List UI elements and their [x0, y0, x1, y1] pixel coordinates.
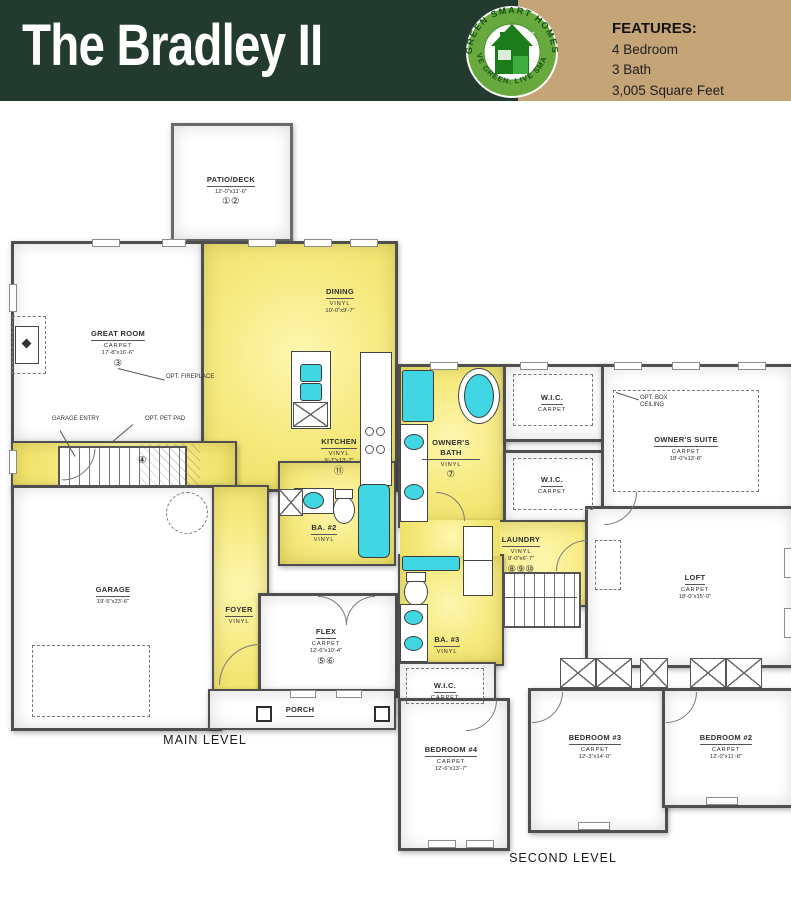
room-label-great-room: GREAT ROOM CARPET 17'-8"x16'-6" ③	[68, 322, 168, 370]
floorplan-sheet: The Bradley II	[0, 0, 791, 907]
toilet-icon	[404, 578, 428, 606]
soaking-tub-basin-icon	[464, 374, 494, 418]
room-label-kitchen: KITCHEN VINYL 9'-7"x13'-7" ⑪	[306, 430, 372, 478]
window	[784, 608, 791, 638]
stairs-badge: ④	[138, 455, 147, 466]
linen-closet-icon	[640, 658, 668, 688]
bedroom3-closet-icon	[560, 658, 596, 688]
features-list: FEATURES: 4 Bedroom 3 Bath 3,005 Square …	[612, 20, 724, 101]
room-label-wic-1: W.I.C. CARPET	[521, 386, 583, 414]
window	[336, 690, 362, 698]
toilet-tank-icon	[406, 572, 426, 582]
sink-icon	[404, 434, 424, 450]
header-bar: The Bradley II	[0, 0, 791, 101]
window	[9, 450, 17, 474]
porch-column	[374, 706, 390, 722]
window	[578, 822, 610, 830]
window	[248, 239, 276, 247]
window	[9, 284, 17, 312]
window	[672, 362, 700, 370]
garage-option-outline	[32, 645, 150, 717]
bedroom3-closet-icon	[596, 658, 632, 688]
dryer-icon	[463, 560, 493, 596]
window	[614, 362, 642, 370]
annotation-box-ceiling: OPT. BOX CEILING	[640, 395, 686, 409]
porch-column	[256, 706, 272, 722]
room-label-bedroom-2: BEDROOM #2 CARPET 12'-0"x11'-8"	[676, 726, 776, 762]
kitchen-sink-icon	[300, 364, 322, 382]
understair-closet-icon	[279, 489, 303, 516]
window	[466, 840, 494, 848]
room-label-patio-deck: PATIO/DECK 12'-0"x11'-6" ①②	[171, 168, 291, 209]
room-label-wic-3: W.I.C. CARPET	[414, 674, 476, 702]
window	[430, 362, 458, 370]
kitchen-sink-icon	[300, 383, 322, 401]
room-label-garage: GARAGE 19'-5"x23'-6"	[58, 578, 168, 606]
room-label-owners-bath: OWNER'S BATH VINYL ⑦	[422, 438, 480, 481]
toilet-tank-icon	[335, 489, 353, 499]
room-label-foyer: FOYER VINYL	[211, 598, 267, 626]
annotation-garage-entry: GARAGE ENTRY	[52, 416, 104, 423]
attic-access-outline	[595, 540, 621, 590]
feature-baths: 3 Bath	[612, 60, 724, 80]
island-cabinet-icon	[293, 402, 328, 427]
room-label-loft: LOFT CARPET 18'-0"x15'-0"	[658, 566, 732, 602]
room-label-bedroom-3: BEDROOM #3 CARPET 12'-3"x14'-0"	[548, 726, 642, 762]
window	[706, 797, 738, 805]
features-heading: FEATURES:	[612, 20, 724, 37]
staircase-second-level	[503, 572, 581, 628]
room-label-porch: PORCH	[268, 698, 332, 719]
sink-icon	[303, 492, 324, 509]
room-label-bedroom-4: BEDROOM #4 CARPET 12'-6"x13'-7"	[406, 738, 496, 774]
room-label-bath-2: BA. #2 VINYL	[296, 516, 352, 544]
feature-bedrooms: 4 Bedroom	[612, 40, 724, 60]
room-bedroom-4	[398, 698, 510, 851]
bathtub-icon	[358, 484, 390, 558]
annotation-pet-pad: OPT. PET PAD	[145, 416, 195, 423]
bath3-tub-icon	[402, 556, 460, 571]
room-label-dining: DINING VINYL 10'-0"x9'-7"	[300, 280, 380, 316]
room-label-laundry: LAUNDRY VINYL 9'-0"x6'-7" ⑧⑨⑩	[490, 528, 552, 576]
second-level-caption: SECOND LEVEL	[488, 851, 638, 865]
feature-sqft: 3,005 Square Feet	[612, 81, 724, 101]
pet-pad-hatch	[140, 444, 200, 485]
main-level-caption: MAIN LEVEL	[130, 733, 280, 747]
plan-title: The Bradley II	[22, 12, 322, 79]
window	[290, 690, 316, 698]
stair-rail	[503, 597, 577, 598]
garage-dashed-circle	[166, 492, 208, 534]
sink-icon	[404, 610, 423, 625]
window	[428, 840, 456, 848]
annotation-opt-fireplace: OPT. FIREPLACE	[166, 374, 226, 381]
bedroom2-closet-icon	[690, 658, 726, 688]
window	[92, 239, 120, 247]
shower-icon	[402, 370, 434, 422]
window	[520, 362, 548, 370]
green-smart-homes-logo-icon: GREEN SMART HOMES LIVE GREEN. LIVE SMART	[460, 4, 564, 100]
washer-icon	[463, 526, 493, 562]
window	[350, 239, 378, 247]
room-label-wic-2: W.I.C. CARPET	[521, 468, 583, 496]
room-label-flex: FLEX CARPET 12'-6"x10'-4" ⑤⑥	[288, 620, 364, 668]
room-label-owners-suite: OWNER'S SUITE CARPET 18'-0"x13'-8"	[626, 428, 746, 464]
window	[784, 548, 791, 578]
window	[738, 362, 766, 370]
window	[304, 239, 332, 247]
bedroom2-closet-icon	[726, 658, 762, 688]
room-label-bath-3: BA. #3 VINYL	[418, 628, 476, 656]
sink-icon	[404, 484, 424, 500]
window	[162, 239, 186, 247]
